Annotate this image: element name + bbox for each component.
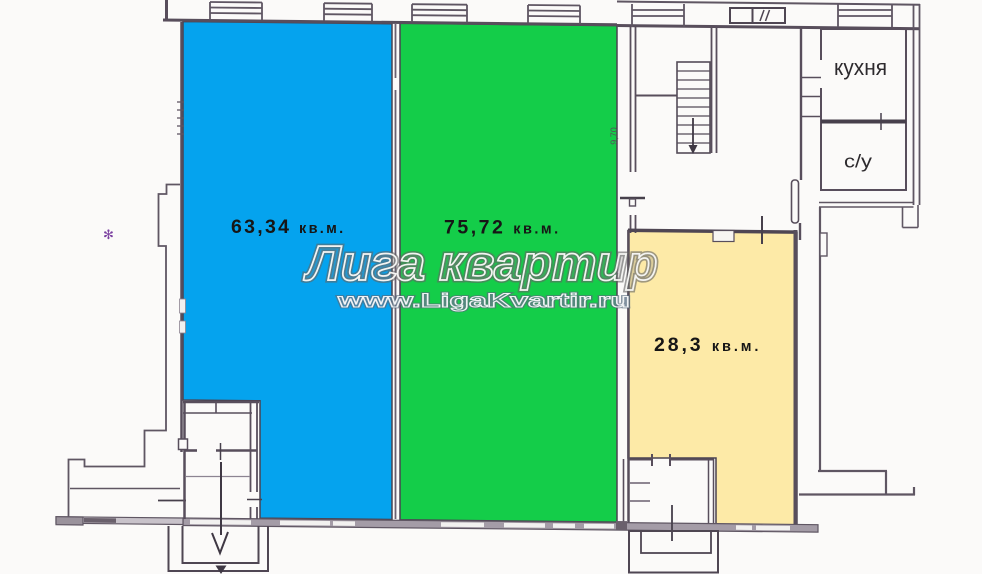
svg-text:9,70: 9,70 (609, 127, 619, 145)
svg-text:✻: ✻ (103, 227, 114, 242)
svg-text:с/у: с/у (844, 152, 872, 172)
svg-text:www.LigaKvartir.ru: www.LigaKvartir.ru (336, 291, 630, 312)
svg-text:Лига квартир: Лига квартир (303, 237, 657, 291)
svg-text:кухня: кухня (834, 55, 887, 80)
